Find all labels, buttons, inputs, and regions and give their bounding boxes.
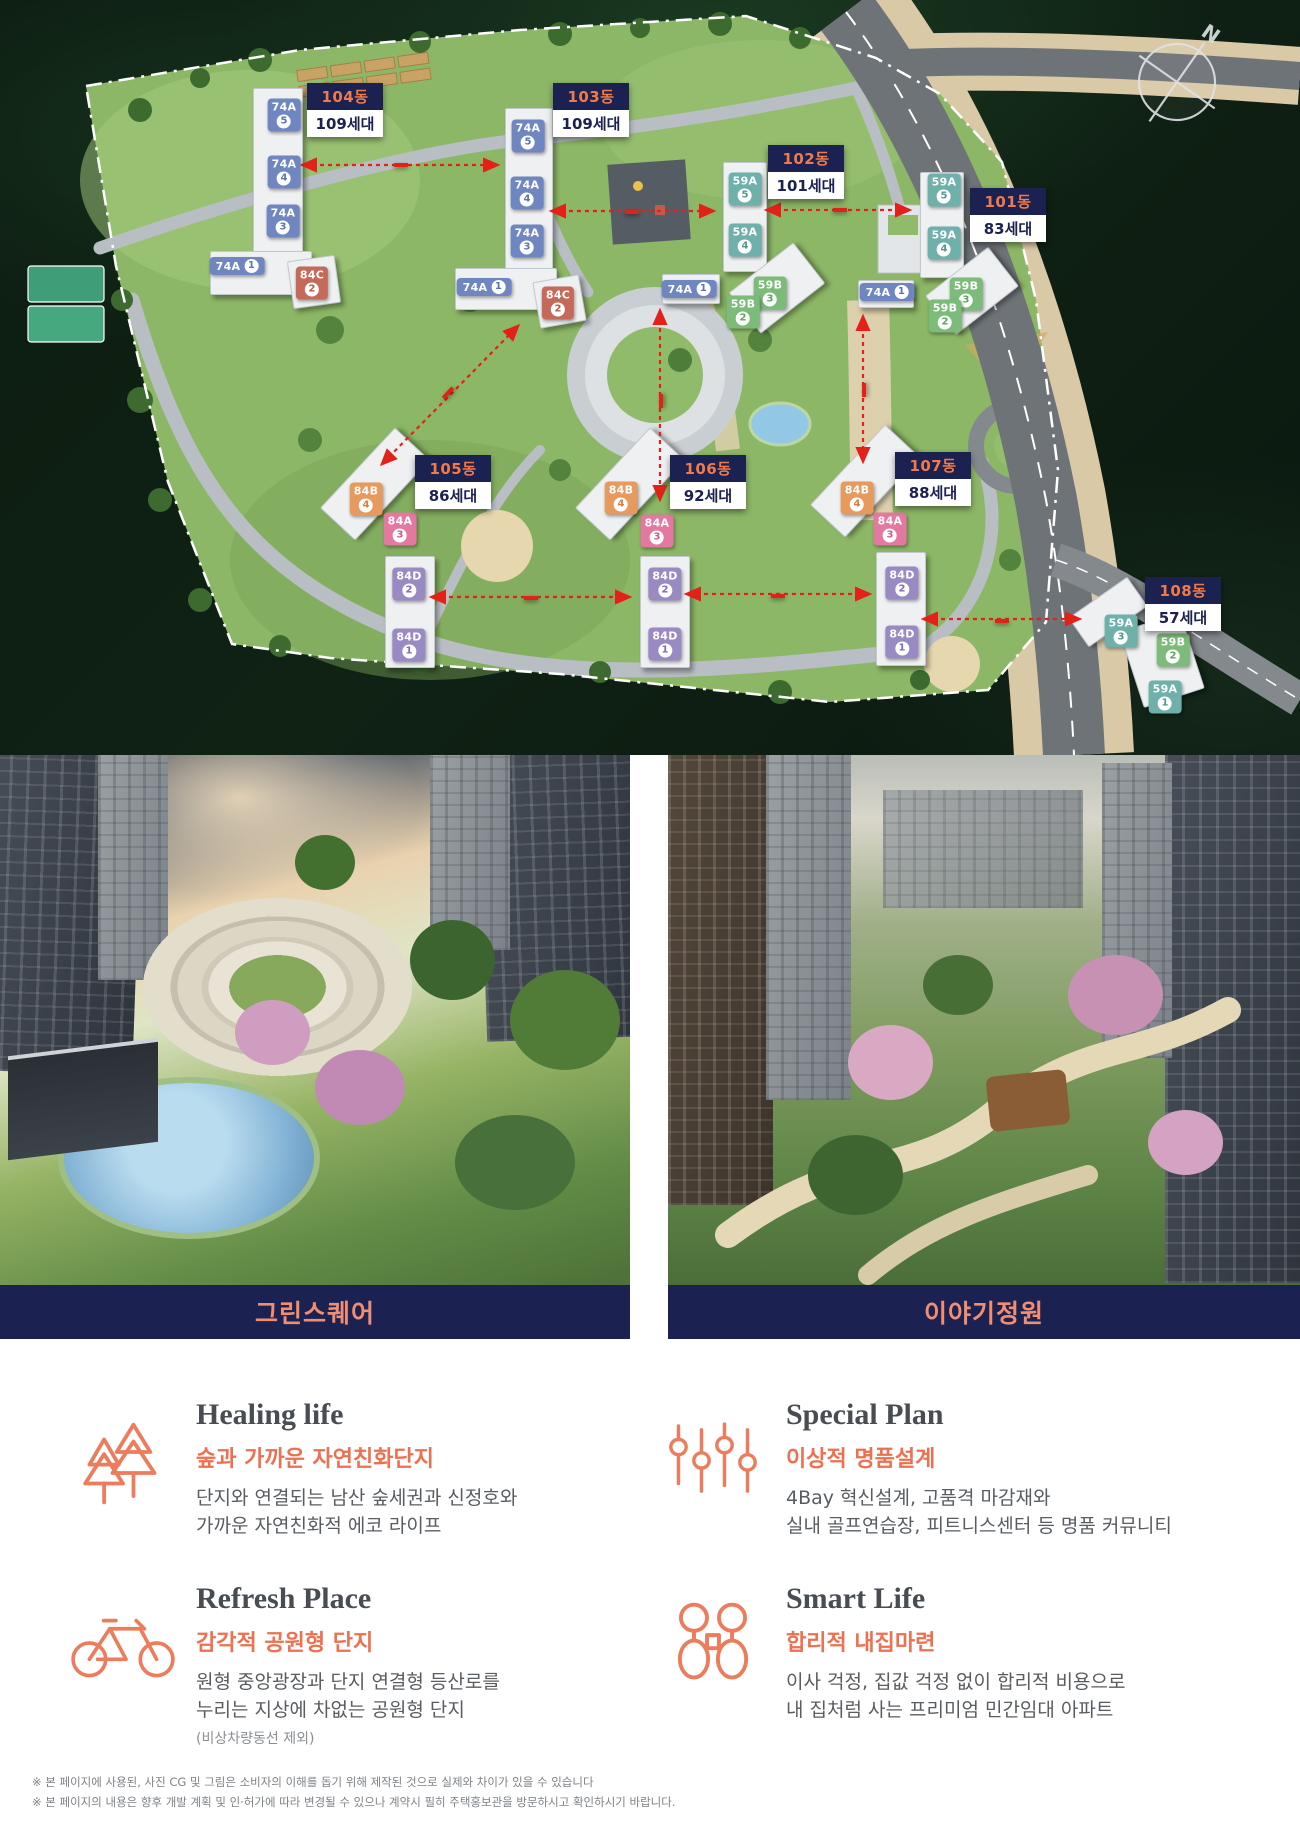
photo-caption-bar: 그린스퀘어 [0,1285,630,1339]
unit-number-badge: 3 [650,531,664,545]
unit-number-badge: 3 [883,529,897,543]
unit-chip: 84A 3 [874,513,907,546]
unit-chip: 74A 5 [268,99,301,132]
block-number: 105동 [415,455,491,482]
unit-number-badge: 3 [393,529,407,543]
unit-type: 84D [652,631,677,642]
render-photo-green-square [0,755,630,1285]
unit-number-badge: 1 [1158,697,1172,711]
unit-chip: 59A 5 [928,174,961,207]
unit-number-badge: 1 [491,280,505,294]
playground-structure [985,1069,1070,1132]
site-plan-map: N 104동 109세대 103동 109세대 102동 101세대 101동 … [0,0,1300,755]
photo-caption-bar: 이야기정원 [668,1285,1300,1339]
unit-type: 59A [1109,618,1134,629]
unit-chip: 84B 4 [350,483,383,516]
unit-chip: 84A 3 [384,513,417,546]
unit-number-badge: 3 [520,241,534,255]
unit-number-badge: 2 [551,303,565,317]
unit-number-badge: 4 [359,499,373,513]
block-unit-count: 86세대 [415,482,491,509]
feature-body: 이사 걱정, 집값 걱정 없이 합리적 비용으로 내 집처럼 사는 프리미엄 민… [786,1669,1125,1724]
unit-chip: 59B 2 [1157,634,1190,667]
unit-chip: 84D 2 [885,567,918,600]
building-block-label: 107동 88세대 [895,452,971,506]
unit-type: 59B [933,303,958,314]
unit-chip: 74A 1 [662,280,717,298]
unit-type: 59B [758,280,783,291]
unit-type: 84B [354,486,379,497]
unit-type: 84A [388,516,413,527]
unit-number-badge: 4 [520,193,534,207]
unit-number-badge: 2 [1166,650,1180,664]
photo-caption: 이야기정원 [924,1294,1044,1330]
distance-label [862,383,866,397]
unit-number-badge: 4 [614,498,628,512]
feature-title: Refresh Place [196,1582,500,1615]
building-block-label: 103동 109세대 [553,83,629,137]
unit-chip: 59A 3 [1105,615,1138,648]
feature-subtitle: 이상적 명품설계 [786,1441,1172,1473]
disclaimer: ※ 본 페이지에 사용된, 사진 CG 및 그림은 소비자의 이해를 돕기 위해… [32,1772,675,1812]
unit-number-badge: 3 [1114,631,1128,645]
unit-number-badge: 5 [277,115,291,129]
render-photo-story-garden [668,755,1300,1285]
unit-type: 84B [845,485,870,496]
unit-number-badge: 1 [696,282,710,296]
photo-caption: 그린스퀘어 [255,1294,375,1330]
unit-number-badge: 4 [738,240,752,254]
unit-chips: 74A 5 74A 4 74A 3 74A 1 84C 2 74A 5 74A … [0,0,1300,755]
pavilion [8,1038,158,1160]
unit-type: 74A [515,228,540,239]
unit-chip: 59B 2 [929,300,962,333]
brochure-page: { "site_plan": { "compass": "N", "blocks… [0,0,1300,1838]
unit-type: 84D [396,571,421,582]
unit-type: 74A [516,123,541,134]
block-unit-count: 109세대 [553,110,629,137]
distance-label [524,596,538,600]
unit-type: 84C [546,290,570,301]
feature-body: 4Bay 혁신설계, 고품격 마감재와 실내 골프연습장, 피트니스센터 등 명… [786,1485,1172,1540]
unit-type: 84C [300,270,324,281]
unit-type: 74A [216,261,241,272]
unit-type: 59B [1161,637,1186,648]
compass-north-label: N [1197,20,1224,48]
unit-chip: 84D 1 [885,626,918,659]
unit-type: 84D [652,571,677,582]
unit-number-badge: 1 [244,259,258,273]
feature-refresh-place: Refresh Place 감각적 공원형 단지 원형 중앙광장과 단지 연결형… [55,1582,635,1748]
unit-chip: 59A 4 [729,224,762,257]
unit-chip: 84D 2 [392,568,425,601]
feature-title: Special Plan [786,1398,1172,1431]
block-unit-count: 83세대 [970,215,1046,242]
unit-chip: 74A 5 [512,120,545,153]
unit-number-badge: 1 [402,645,416,659]
unit-number-badge: 2 [658,584,672,598]
block-number: 108동 [1145,577,1221,604]
unit-number-badge: 2 [402,584,416,598]
distance-label [833,208,847,212]
unit-number-badge: 5 [738,189,752,203]
unit-chip: 74A 3 [267,205,300,238]
feature-healing-life: Healing life 숲과 가까운 자연친화단지 단지와 연결되는 남산 숲… [55,1398,635,1540]
block-number: 104동 [307,83,383,110]
unit-chip: 84C 2 [542,287,574,320]
unit-chip: 74A 1 [860,283,915,301]
building-block-label: 102동 101세대 [768,145,844,199]
unit-chip: 84D 1 [648,628,681,661]
unit-type: 59A [733,227,758,238]
block-unit-count: 109세대 [307,110,383,137]
unit-number-badge: 3 [276,221,290,235]
block-number: 106동 [670,455,746,482]
unit-number-badge: 5 [937,190,951,204]
block-unit-count: 101세대 [768,172,844,199]
unit-number-badge: 4 [937,243,951,257]
block-number: 103동 [553,83,629,110]
unit-type: 74A [272,159,297,170]
unit-type: 84D [889,570,914,581]
unit-chip: 59A 1 [1149,681,1182,714]
feature-special-plan: Special Plan 이상적 명품설계 4Bay 혁신설계, 고품격 마감재… [645,1398,1285,1540]
compass: N [1115,20,1240,145]
building-block-label: 101동 83세대 [970,188,1046,242]
unit-type: 59A [932,177,957,188]
unit-chip: 59B 2 [727,296,760,329]
unit-chip: 59A 5 [729,173,762,206]
unit-type: 74A [272,102,297,113]
unit-chip: 59A 4 [928,227,961,260]
unit-type: 74A [866,287,891,298]
unit-chip: 74A 4 [511,177,544,210]
unit-number-badge: 2 [305,283,319,297]
distance-label [625,210,639,214]
feature-smart-life: Smart Life 합리적 내집마련 이사 걱정, 집값 걱정 없이 합리적 … [645,1582,1285,1724]
unit-number-badge: 1 [894,285,908,299]
disclaimer-line: ※ 본 페이지에 사용된, 사진 CG 및 그림은 소비자의 이해를 돕기 위해… [32,1772,675,1792]
unit-number-badge: 3 [763,293,777,307]
bicycle-icon [55,1582,190,1748]
distance-label [995,619,1009,623]
feature-body: 단지와 연결되는 남산 숲세권과 신정호와 가까운 자연친화적 에코 라이프 [196,1485,517,1540]
unit-number-badge: 2 [938,316,952,330]
building-block-label: 105동 86세대 [415,455,491,509]
unit-chip: 84B 4 [605,482,638,515]
unit-number-badge: 5 [521,136,535,150]
unit-type: 84A [878,516,903,527]
unit-number-badge: 1 [895,642,909,656]
unit-chip: 84C 2 [296,267,328,300]
unit-number-badge: 4 [850,498,864,512]
unit-chip: 74A 1 [210,257,265,275]
unit-number-badge: 1 [658,644,672,658]
unit-type: 74A [271,208,296,219]
unit-chip: 84D 2 [648,568,681,601]
unit-number-badge: 2 [736,312,750,326]
unit-chip: 74A 3 [511,225,544,258]
unit-number-badge: 2 [895,583,909,597]
building-block-label: 108동 57세대 [1145,577,1221,631]
feature-title: Healing life [196,1398,517,1431]
unit-type: 59A [932,230,957,241]
building-block-label: 104동 109세대 [307,83,383,137]
unit-type: 84B [609,485,634,496]
block-number: 102동 [768,145,844,172]
feature-note: (비상차량동선 제외) [196,1728,500,1748]
unit-type: 74A [463,282,488,293]
unit-type: 74A [668,284,693,295]
unit-type: 74A [515,180,540,191]
unit-type: 84D [396,632,421,643]
unit-chip: 84B 4 [841,482,874,515]
feature-title: Smart Life [786,1582,1125,1615]
binoculars-icon [645,1582,780,1724]
equalizer-icon [645,1398,780,1540]
block-number: 101동 [970,188,1046,215]
unit-type: 59B [954,281,979,292]
unit-type: 59B [731,299,756,310]
unit-type: 84A [645,518,670,529]
unit-chip: 84D 1 [392,629,425,662]
unit-chip: 74A 1 [457,278,512,296]
feature-subtitle: 숲과 가까운 자연친화단지 [196,1441,517,1473]
feature-subtitle: 감각적 공원형 단지 [196,1625,500,1657]
unit-type: 59A [733,176,758,187]
unit-number-badge: 4 [277,172,291,186]
feature-subtitle: 합리적 내집마련 [786,1625,1125,1657]
distance-label [771,594,785,598]
building-block-label: 106동 92세대 [670,455,746,509]
unit-chip: 74A 4 [268,156,301,189]
distance-label [659,394,663,408]
block-unit-count: 92세대 [670,482,746,509]
unit-type: 59A [1153,684,1178,695]
disclaimer-line: ※ 본 페이지의 내용은 향후 개발 계획 및 인·허가에 따라 변경될 수 있… [32,1792,675,1812]
feature-body: 원형 중앙광장과 단지 연결형 등산로를 누리는 지상에 차없는 공원형 단지 [196,1669,500,1724]
unit-type: 84D [889,629,914,640]
block-number: 107동 [895,452,971,479]
distance-label [394,163,408,167]
block-unit-count: 88세대 [895,479,971,506]
unit-chip: 84A 3 [641,515,674,548]
trees-icon [55,1398,190,1540]
block-unit-count: 57세대 [1145,604,1221,631]
